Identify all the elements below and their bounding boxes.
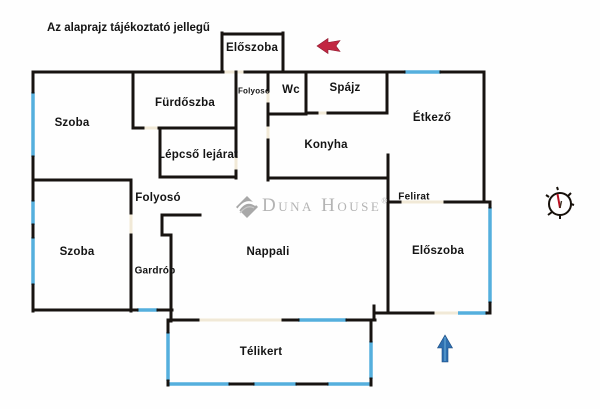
room-label-wc: Wc (282, 84, 300, 96)
floorplan-page: Az alaprajz tájékoztató jellegű Előszoba… (0, 0, 600, 409)
brand-watermark-text: Duna House (262, 195, 381, 216)
room-label-konyha: Konyha (304, 139, 347, 151)
up-arrow-icon (438, 335, 453, 362)
room-label-szoba-upper: Szoba (55, 117, 90, 129)
room-label-folyoso-middle: Folyosó (135, 192, 181, 204)
room-label-spajz: Spájz (329, 82, 360, 94)
room-label-gardrob: Gardrób (135, 266, 176, 277)
room-label-eloszoba-top: Előszoba (226, 42, 278, 54)
brand-diamond-icon (236, 196, 258, 218)
room-label-folyoso-upper: Folyosó (238, 87, 270, 96)
room-label-szoba-lower: Szoba (60, 246, 95, 258)
room-label-felirat: Felirat (398, 192, 429, 203)
registered-mark: ® (381, 197, 387, 206)
compass-icon (546, 187, 574, 219)
room-label-telikert: Télikert (240, 346, 283, 358)
room-label-lepcso-lejarat: Lépcső lejárat (158, 149, 238, 161)
room-label-etkezo: Étkező (413, 112, 451, 124)
disclaimer-text: Az alaprajz tájékoztató jellegű (47, 22, 210, 34)
room-label-nappali: Nappali (247, 246, 290, 258)
room-label-eloszoba-right: Előszoba (412, 245, 464, 257)
brand-watermark: Duna House® (262, 195, 387, 217)
left-arrow-icon (317, 39, 340, 54)
room-label-furdoszoba: Fürdőszba (155, 97, 215, 109)
